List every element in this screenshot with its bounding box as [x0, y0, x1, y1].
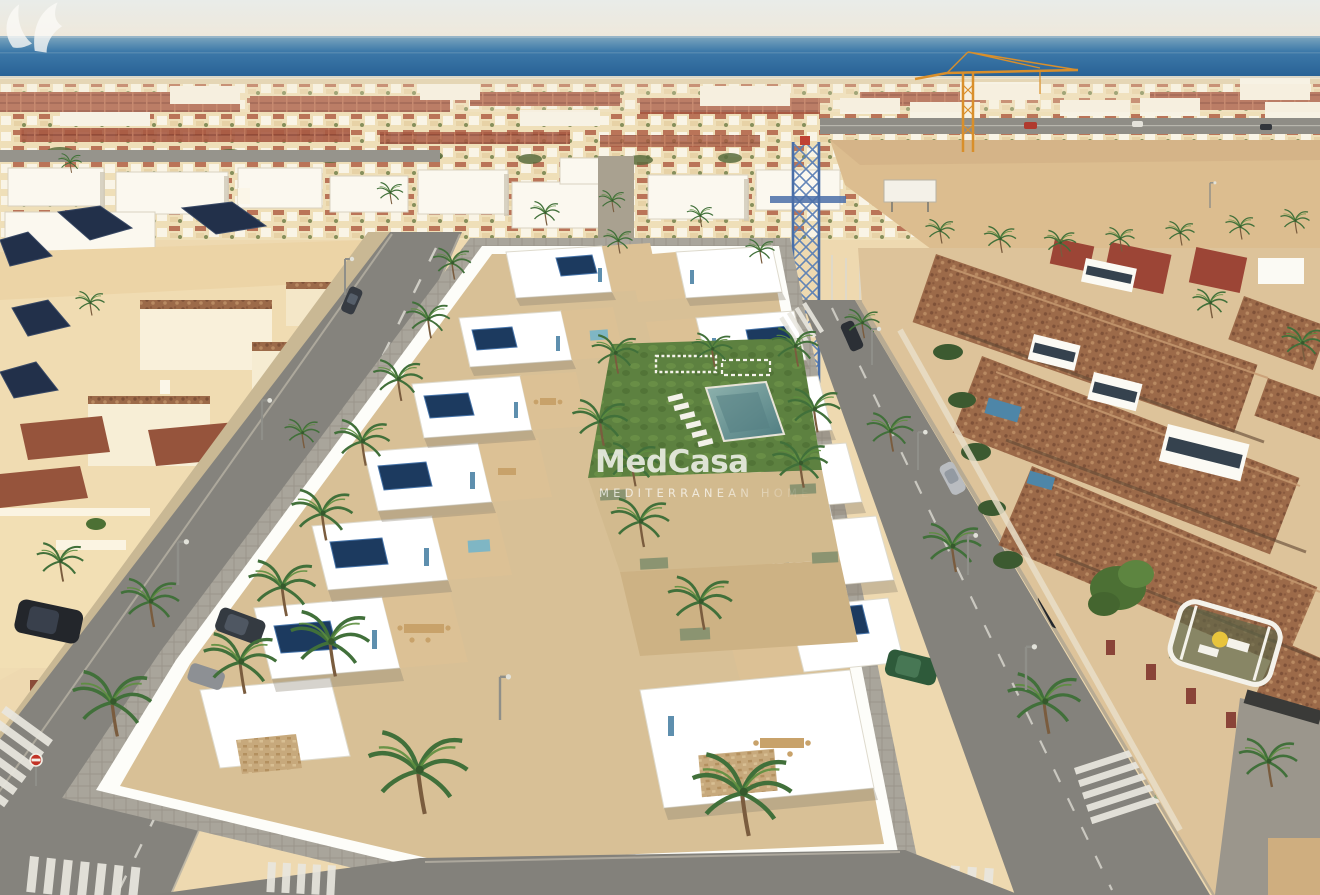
stone-clad-wall-left [236, 734, 302, 774]
aerial-render-photo: MedCasa MEDITERRANEAN HOMES [0, 0, 1320, 895]
sky [0, 0, 1320, 40]
scene-canvas [0, 0, 1320, 895]
crane-cab [800, 136, 810, 145]
car-white-small [1132, 121, 1143, 127]
coast-road [820, 118, 1320, 134]
haze [0, 84, 1320, 112]
bottom-road [150, 850, 1020, 895]
sea [0, 36, 1320, 80]
car-red-small [1024, 122, 1037, 129]
car-dark-small [1260, 124, 1272, 130]
